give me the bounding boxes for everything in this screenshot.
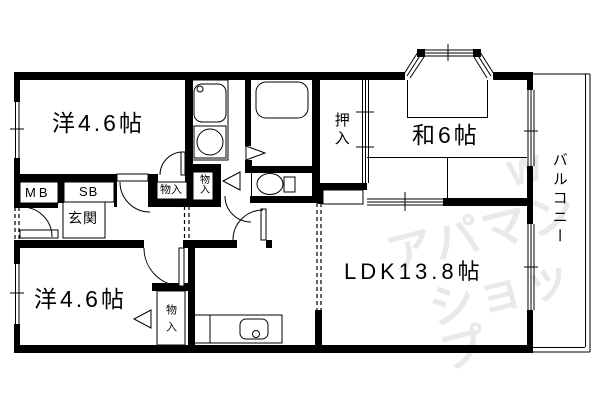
window-icon [10,264,24,324]
genkan-label: 玄関 [68,211,98,226]
door-swing-icon [144,248,184,286]
door-direction-icon [246,146,265,160]
washing-machine-icon [197,129,223,155]
bathtub-icon [256,82,308,118]
room-label-western2: 洋4.6帖 [34,287,127,311]
sliding-door-icon [367,192,443,211]
door-direction-icon [223,172,240,190]
door-swing-icon [117,174,150,212]
toilet-icon [257,174,295,195]
entrance-door-icon [20,207,58,238]
shoe-box-label: SB [79,185,98,199]
closet-label-wash: 物入 [197,174,208,194]
window-icon [10,102,24,158]
door-direction-icon [134,310,151,328]
kitchen-sink-icon [190,315,282,343]
closet-label-oshiire: 押入 [333,112,349,148]
room-label-ldk: LDK13.8帖 [344,260,484,283]
closet-label-south: 物入 [164,304,176,338]
room-label-western1: 洋4.6帖 [52,111,145,135]
door-swing-icon [233,209,266,240]
floorplan: アパマン ショップ W [0,0,600,400]
room-label-japanese: 和6帖 [412,123,480,147]
meter-box-label: MB [25,186,51,200]
balcony-label: バルコニー [551,152,567,247]
closet-label-hall: 物入 [160,185,182,197]
balcony-sash-icon [524,90,538,166]
sliding-door-icon [356,80,374,183]
floorplan-geometry [0,0,600,400]
door-swing-icon [160,152,185,175]
counter-outline [323,190,363,204]
washbasin-icon [192,80,228,160]
balcony-sash-icon [524,224,538,310]
